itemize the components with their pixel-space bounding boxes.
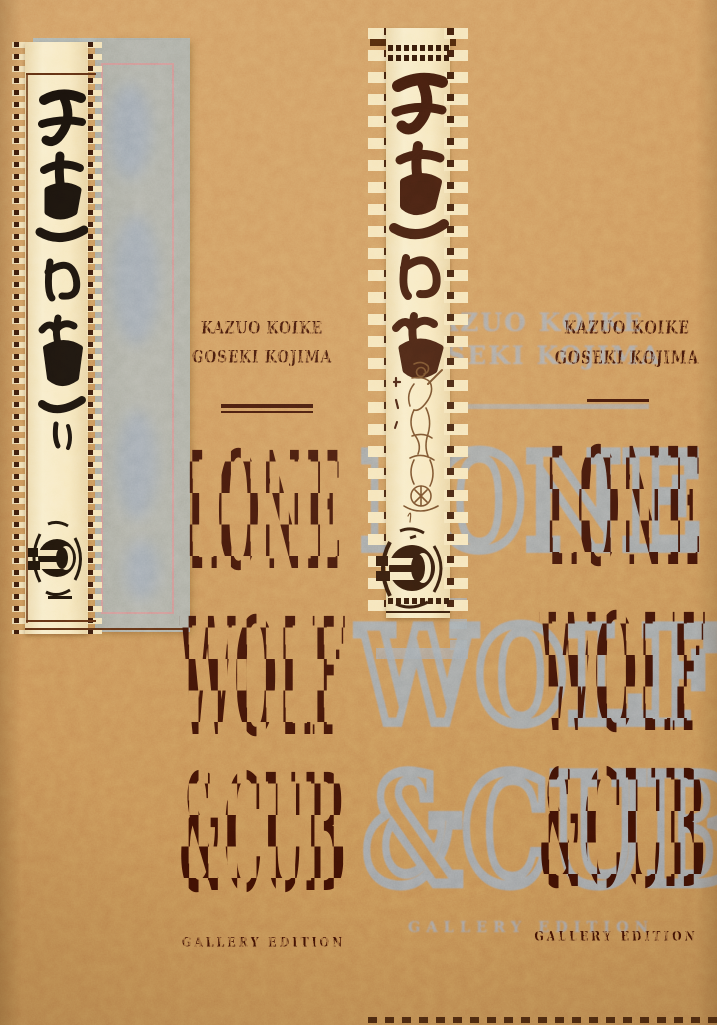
divider-thin (587, 399, 649, 402)
edition-text: GALLERY EDITION (182, 935, 342, 950)
title-line3: &CUB (132, 752, 392, 806)
title-line2: WOLF (132, 596, 392, 650)
author-line1: KAZUO KOIKE (548, 317, 706, 338)
book-cover-photo: KAZUO KOIKE GOSEKI KOJIMA LONE WOLF &CUB… (0, 0, 717, 1025)
scroll-frame-line (26, 73, 96, 75)
title-line2: WOLF (492, 592, 717, 646)
left-kanji-scroll (12, 42, 102, 634)
panel-ink-shadow (109, 84, 151, 179)
ghost-divider (459, 404, 649, 409)
title-line3: &CUB (492, 748, 717, 802)
scroll-frame-line (26, 620, 96, 622)
scroll-top-band (388, 55, 450, 61)
ghost-scroll-panel (95, 40, 190, 632)
divider-thick (221, 404, 313, 408)
scroll-stitches-icon (88, 42, 93, 634)
kanji-calligraphy-icon (388, 70, 450, 380)
kanji-calligraphy-icon (34, 86, 88, 456)
divider-thin (221, 411, 313, 413)
circle-crest-icon (28, 520, 86, 598)
samurai-illustration-icon (384, 356, 448, 526)
scroll-top-band (388, 45, 450, 51)
edition-text: GALLERY EDITION (516, 929, 716, 944)
panel-ink-shadow (113, 215, 159, 345)
panel-ink-shadow (125, 540, 159, 600)
scroll-bottom-line (386, 611, 450, 613)
author-line1: KAZUO KOIKE (183, 317, 341, 338)
right-kanji-scroll (368, 28, 468, 618)
bottom-stitch-seam (368, 1017, 717, 1023)
title-line1: LONE (132, 430, 392, 484)
author-line2: GOSEKI KOJIMA (183, 346, 341, 367)
scroll-stitches-icon (14, 42, 19, 634)
title-line1: LONE (492, 426, 717, 480)
author-line2: GOSEKI KOJIMA (548, 347, 706, 368)
